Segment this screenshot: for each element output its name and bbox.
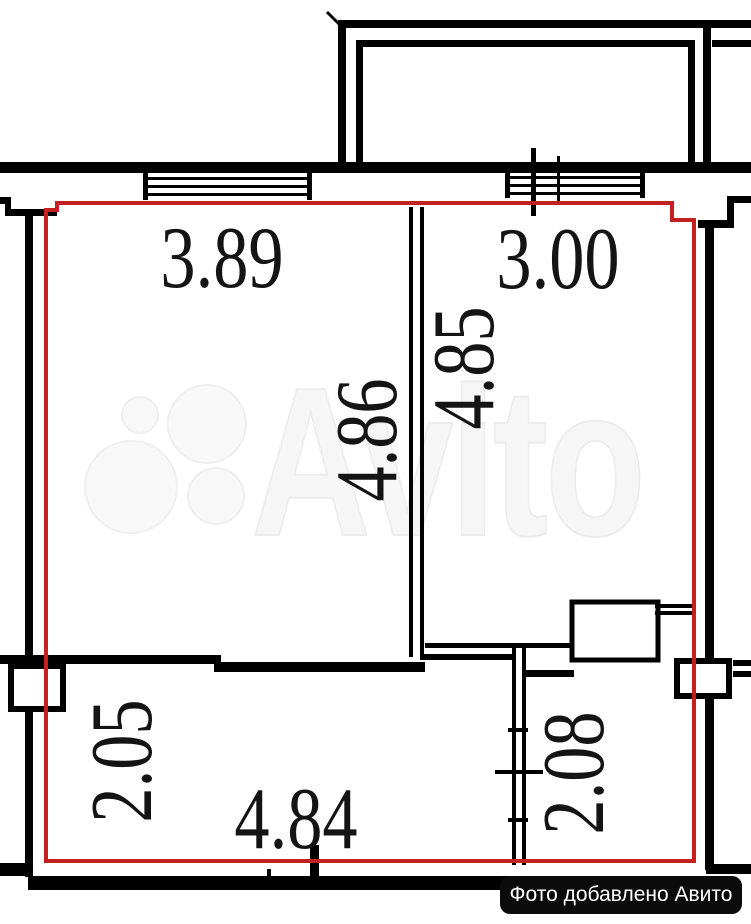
dimension-room-right-width: 3.00 xyxy=(496,216,619,304)
dimension-room-left-width: 3.89 xyxy=(160,215,283,303)
balcony xyxy=(327,12,751,165)
dimension-bath-depth: 2.08 xyxy=(531,711,619,834)
ventilation-shaft xyxy=(572,602,693,660)
floor-plan-screenshot: Avito xyxy=(0,0,751,924)
dimension-room-left-depth: 4.86 xyxy=(324,378,412,501)
photo-added-badge-text: Фото добавлено Авито xyxy=(510,883,733,907)
windows xyxy=(143,148,645,216)
photo-added-badge: Фото добавлено Авито xyxy=(500,876,742,914)
dimension-hall-depth: 2.05 xyxy=(79,699,167,822)
dimension-room-right-depth: 4.85 xyxy=(421,306,509,429)
dimension-hall-width: 4.84 xyxy=(234,776,357,864)
